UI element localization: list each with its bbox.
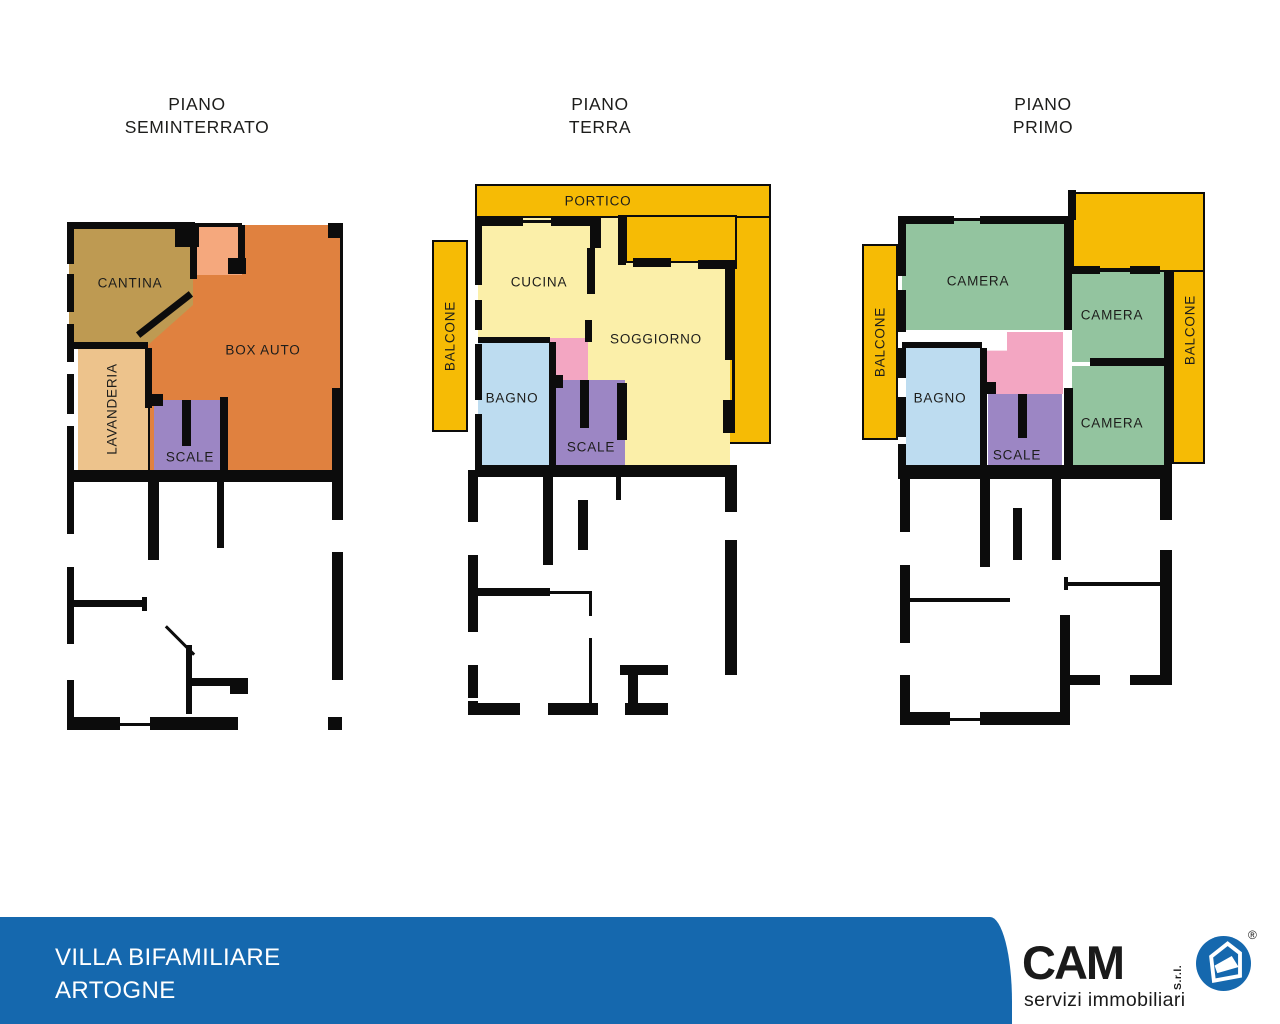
wall <box>616 477 621 500</box>
wall <box>332 482 343 520</box>
wall <box>898 444 906 467</box>
logo-tagline: servizi immobiliari <box>1024 989 1185 1012</box>
wall <box>550 591 592 594</box>
wall <box>732 360 735 400</box>
title-line1: PIANO <box>460 93 740 116</box>
wall <box>1067 582 1160 586</box>
wall <box>67 567 74 644</box>
wall <box>902 342 982 348</box>
wall <box>475 414 482 465</box>
wall <box>980 216 1070 224</box>
wall <box>618 215 626 265</box>
wall <box>954 218 980 221</box>
wall <box>898 224 906 276</box>
wall <box>900 565 910 643</box>
wall <box>523 220 551 223</box>
wall <box>220 397 228 470</box>
label-balcone-right: BALCONE <box>1183 295 1198 365</box>
house-icon <box>1196 936 1251 991</box>
label-camera-2: CAMERA <box>1081 308 1144 323</box>
wall <box>67 482 74 534</box>
wall <box>910 712 950 725</box>
floor-plan-sheet: PIANO SEMINTERRATO PIANO TERRA PIANO PRI… <box>0 0 1280 1024</box>
label-camera-3: CAMERA <box>1081 416 1144 431</box>
wall <box>1164 272 1172 465</box>
title-line2: PRIMO <box>903 116 1183 139</box>
stair-symbol <box>580 380 589 428</box>
wall <box>898 465 1172 479</box>
logo-srl-text: S.r.l. <box>1172 950 1184 990</box>
wall <box>328 223 343 238</box>
label-soggiorno: SOGGIORNO <box>610 332 702 347</box>
wall <box>898 397 906 437</box>
wall <box>230 684 248 694</box>
wall <box>543 477 553 565</box>
stair-symbol <box>1018 394 1027 438</box>
label-scale: SCALE <box>166 450 214 465</box>
wall <box>1064 388 1073 467</box>
wall <box>217 482 224 548</box>
property-location: ARTOGNE <box>55 974 281 1007</box>
wall <box>628 665 638 715</box>
wall <box>1130 675 1160 685</box>
wall <box>475 225 482 285</box>
wall <box>725 470 737 512</box>
wall <box>120 723 150 726</box>
label-balcone-left: BALCONE <box>873 307 888 377</box>
title-line1: PIANO <box>57 93 337 116</box>
floor-plan-terra: PORTICO BALCONE CUCINA SOGGIORNO BAGNO S… <box>430 182 778 717</box>
wall <box>1068 190 1076 220</box>
title-piano-terra: PIANO TERRA <box>460 93 740 139</box>
title-line2: SEMINTERRATO <box>57 116 337 139</box>
wall <box>980 479 990 567</box>
label-bagno: BAGNO <box>914 391 967 406</box>
wall <box>478 337 550 343</box>
wall <box>950 718 980 721</box>
label-lavanderia: LAVANDERIA <box>105 363 120 455</box>
wall <box>617 383 627 440</box>
wall <box>723 400 735 433</box>
footer-text: VILLA BIFAMILIARE ARTOGNE <box>55 941 281 1007</box>
label-scale: SCALE <box>567 440 615 455</box>
wall <box>148 408 150 470</box>
wall <box>898 348 906 378</box>
label-bagno: BAGNO <box>486 391 539 406</box>
room-balcone-right-top <box>1072 192 1205 272</box>
title-piano-primo: PIANO PRIMO <box>903 93 1183 139</box>
wall <box>74 600 145 607</box>
wall <box>190 247 197 279</box>
wall <box>587 248 595 294</box>
wall <box>1160 550 1172 685</box>
wall <box>142 597 147 611</box>
wall <box>984 382 996 394</box>
wall <box>590 218 601 248</box>
label-box-auto: BOX AUTO <box>225 343 300 358</box>
wall <box>332 388 343 470</box>
label-camera-1: CAMERA <box>947 274 1010 289</box>
wall <box>1064 220 1072 330</box>
logo-cam-text: CAM <box>1022 935 1123 990</box>
wall <box>475 300 482 330</box>
wall <box>1070 675 1100 685</box>
wall <box>980 348 987 467</box>
wall <box>585 320 592 342</box>
wall <box>475 588 550 596</box>
wall <box>578 500 588 550</box>
agency-logo: CAM S.r.l. ® servizi immobiliari <box>1012 917 1280 1024</box>
wall <box>468 470 478 522</box>
wall <box>67 426 74 470</box>
wall <box>67 342 148 349</box>
wall <box>475 344 482 400</box>
title-piano-seminterrato: PIANO SEMINTERRATO <box>57 93 337 139</box>
wall <box>67 222 74 264</box>
wall <box>1160 479 1172 520</box>
wall <box>552 375 563 388</box>
wall <box>193 223 242 227</box>
wall <box>228 258 246 274</box>
wall <box>340 238 343 388</box>
wall <box>725 540 737 675</box>
wall <box>725 268 735 360</box>
wall <box>1060 615 1070 725</box>
property-title: VILLA BIFAMILIARE <box>55 941 281 974</box>
wall <box>900 479 910 532</box>
wall <box>1013 508 1022 560</box>
title-line2: TERRA <box>460 116 740 139</box>
wall <box>475 218 523 226</box>
label-cantina: CANTINA <box>98 276 163 291</box>
wall <box>1072 266 1100 274</box>
wall <box>905 598 1010 602</box>
wall <box>468 703 520 715</box>
title-line1: PIANO <box>903 93 1183 116</box>
wall <box>898 290 906 332</box>
label-balcone: BALCONE <box>443 301 458 371</box>
wall <box>549 342 556 465</box>
label-scale: SCALE <box>993 448 1041 463</box>
wall <box>898 216 954 224</box>
wall <box>633 258 671 267</box>
wall <box>67 470 343 482</box>
room-bagno <box>906 348 980 467</box>
footer-bar: VILLA BIFAMILIARE ARTOGNE <box>0 917 1012 1024</box>
floor-plan-primo: BALCONE BALCONE CAMERA CAMERA CAMERA BAG… <box>858 182 1208 727</box>
wall <box>1064 577 1068 590</box>
wall <box>148 482 159 560</box>
wall <box>1052 479 1061 560</box>
floor-plan-seminterrato: CANTINA BOX AUTO LAVANDERIA SCALE <box>62 212 354 737</box>
room-portico-inner <box>625 215 737 263</box>
wall <box>475 465 737 477</box>
wall <box>589 594 592 616</box>
wall <box>468 665 478 698</box>
wall <box>67 374 74 414</box>
wall <box>900 675 910 725</box>
wall <box>328 717 342 730</box>
wall <box>150 394 163 406</box>
wall <box>150 717 238 730</box>
wall <box>74 717 120 730</box>
wall <box>67 680 74 730</box>
label-portico: PORTICO <box>565 194 632 209</box>
wall <box>1100 268 1130 271</box>
wall <box>1130 266 1160 274</box>
wall <box>589 638 592 705</box>
wall <box>175 225 199 247</box>
wall <box>332 552 343 680</box>
registered-mark: ® <box>1248 928 1257 942</box>
label-cucina: CUCINA <box>511 275 568 290</box>
wall <box>67 274 74 312</box>
wall <box>1090 358 1168 366</box>
wall <box>980 712 1060 725</box>
stair-symbol <box>182 400 191 446</box>
